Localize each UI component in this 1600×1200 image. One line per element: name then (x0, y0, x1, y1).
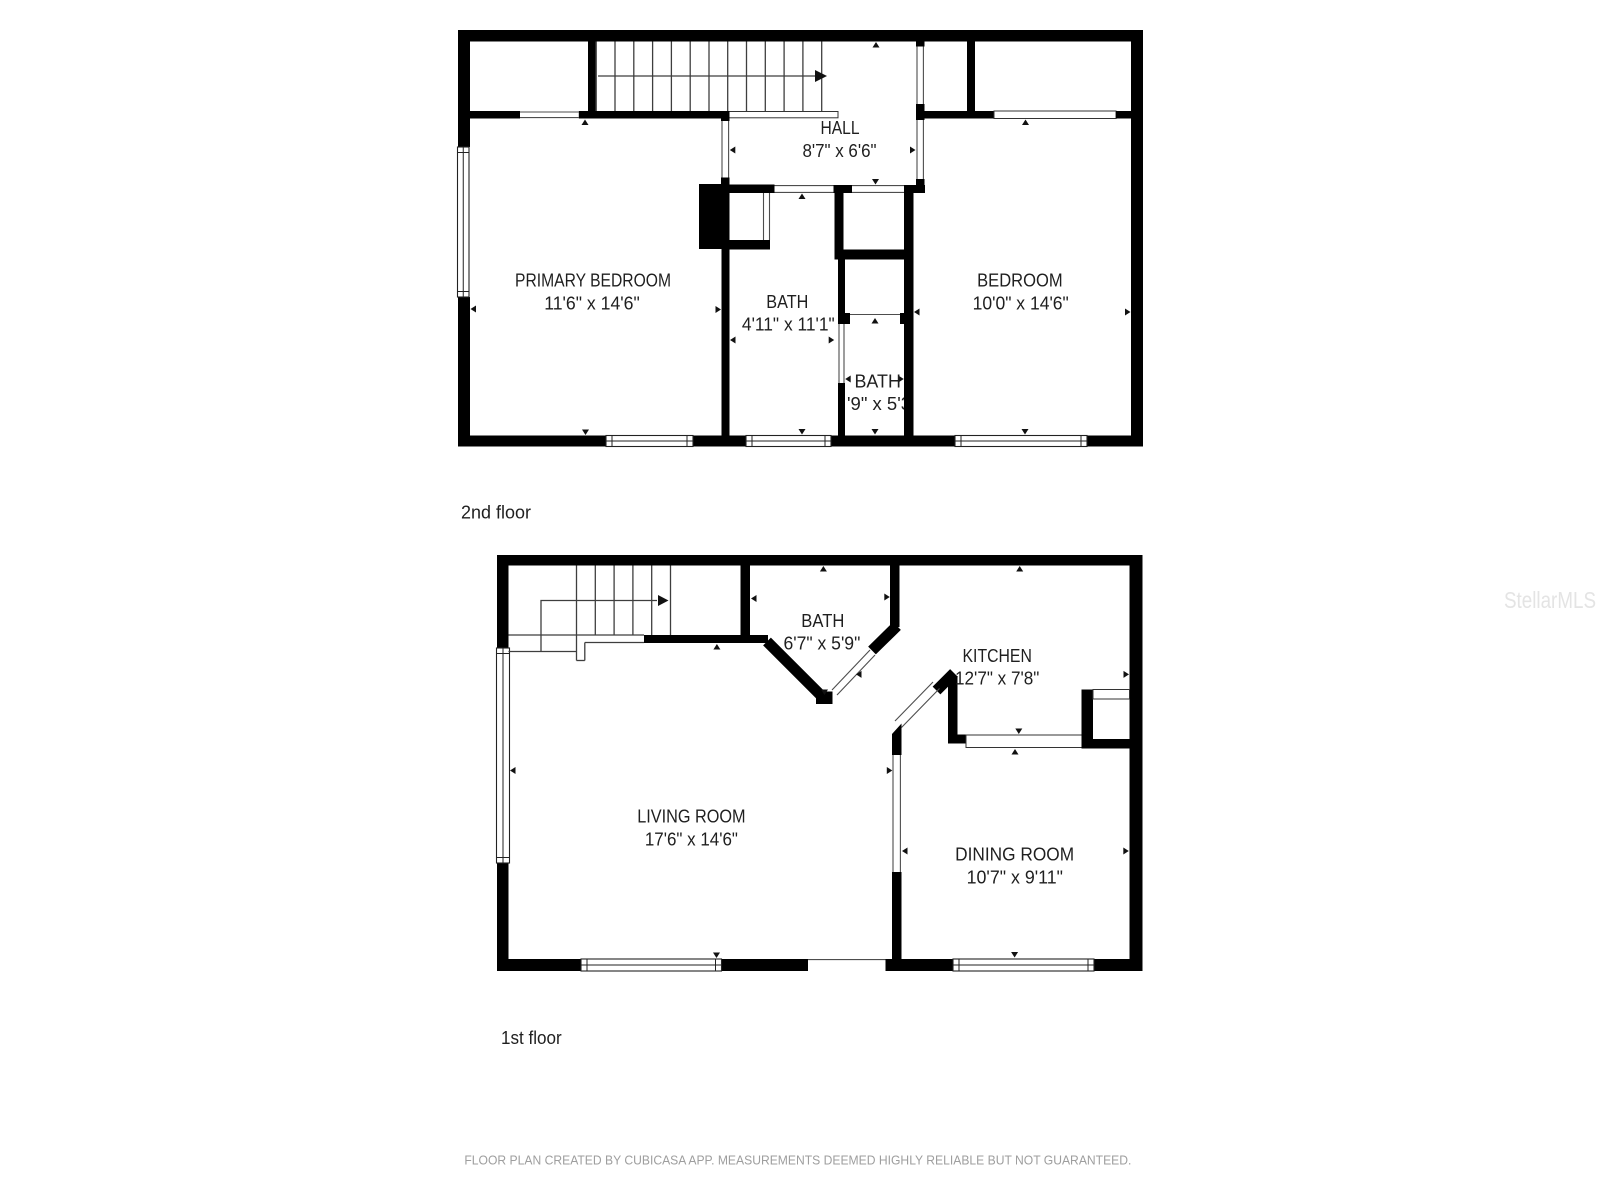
svg-text:1st floor: 1st floor (501, 1027, 562, 1048)
svg-text:BATH: BATH (855, 371, 901, 392)
svg-text:PRIMARY BEDROOM: PRIMARY BEDROOM (515, 270, 671, 291)
svg-text:11'6" x 14'6": 11'6" x 14'6" (544, 293, 640, 314)
svg-text:6'7" x 5'9": 6'7" x 5'9" (783, 633, 860, 654)
svg-text:HALL: HALL (821, 117, 860, 138)
svg-text:8'7" x 6'6": 8'7" x 6'6" (803, 140, 877, 161)
svg-text:17'6" x 14'6": 17'6" x 14'6" (645, 829, 738, 850)
svg-text:StellarMLS: StellarMLS (1504, 587, 1596, 613)
svg-text:BATH: BATH (801, 610, 844, 631)
svg-text:DINING ROOM: DINING ROOM (955, 844, 1074, 865)
svg-text:10'7" x 9'11": 10'7" x 9'11" (967, 867, 1063, 888)
svg-text:4'11" x 11'1": 4'11" x 11'1" (742, 314, 835, 335)
svg-text:FLOOR PLAN CREATED BY CUBICASA: FLOOR PLAN CREATED BY CUBICASA APP. MEAS… (464, 1153, 1131, 1168)
svg-text:10'0" x 14'6": 10'0" x 14'6" (973, 293, 1069, 314)
svg-text:LIVING ROOM: LIVING ROOM (637, 806, 745, 827)
svg-text:BEDROOM: BEDROOM (977, 270, 1063, 291)
svg-text:'9" x 5'3: '9" x 5'3 (847, 393, 911, 414)
svg-text:12'7" x 7'8": 12'7" x 7'8" (955, 668, 1039, 689)
svg-text:BATH: BATH (766, 291, 808, 312)
svg-text:2nd floor: 2nd floor (461, 502, 531, 523)
svg-text:KITCHEN: KITCHEN (963, 645, 1032, 666)
